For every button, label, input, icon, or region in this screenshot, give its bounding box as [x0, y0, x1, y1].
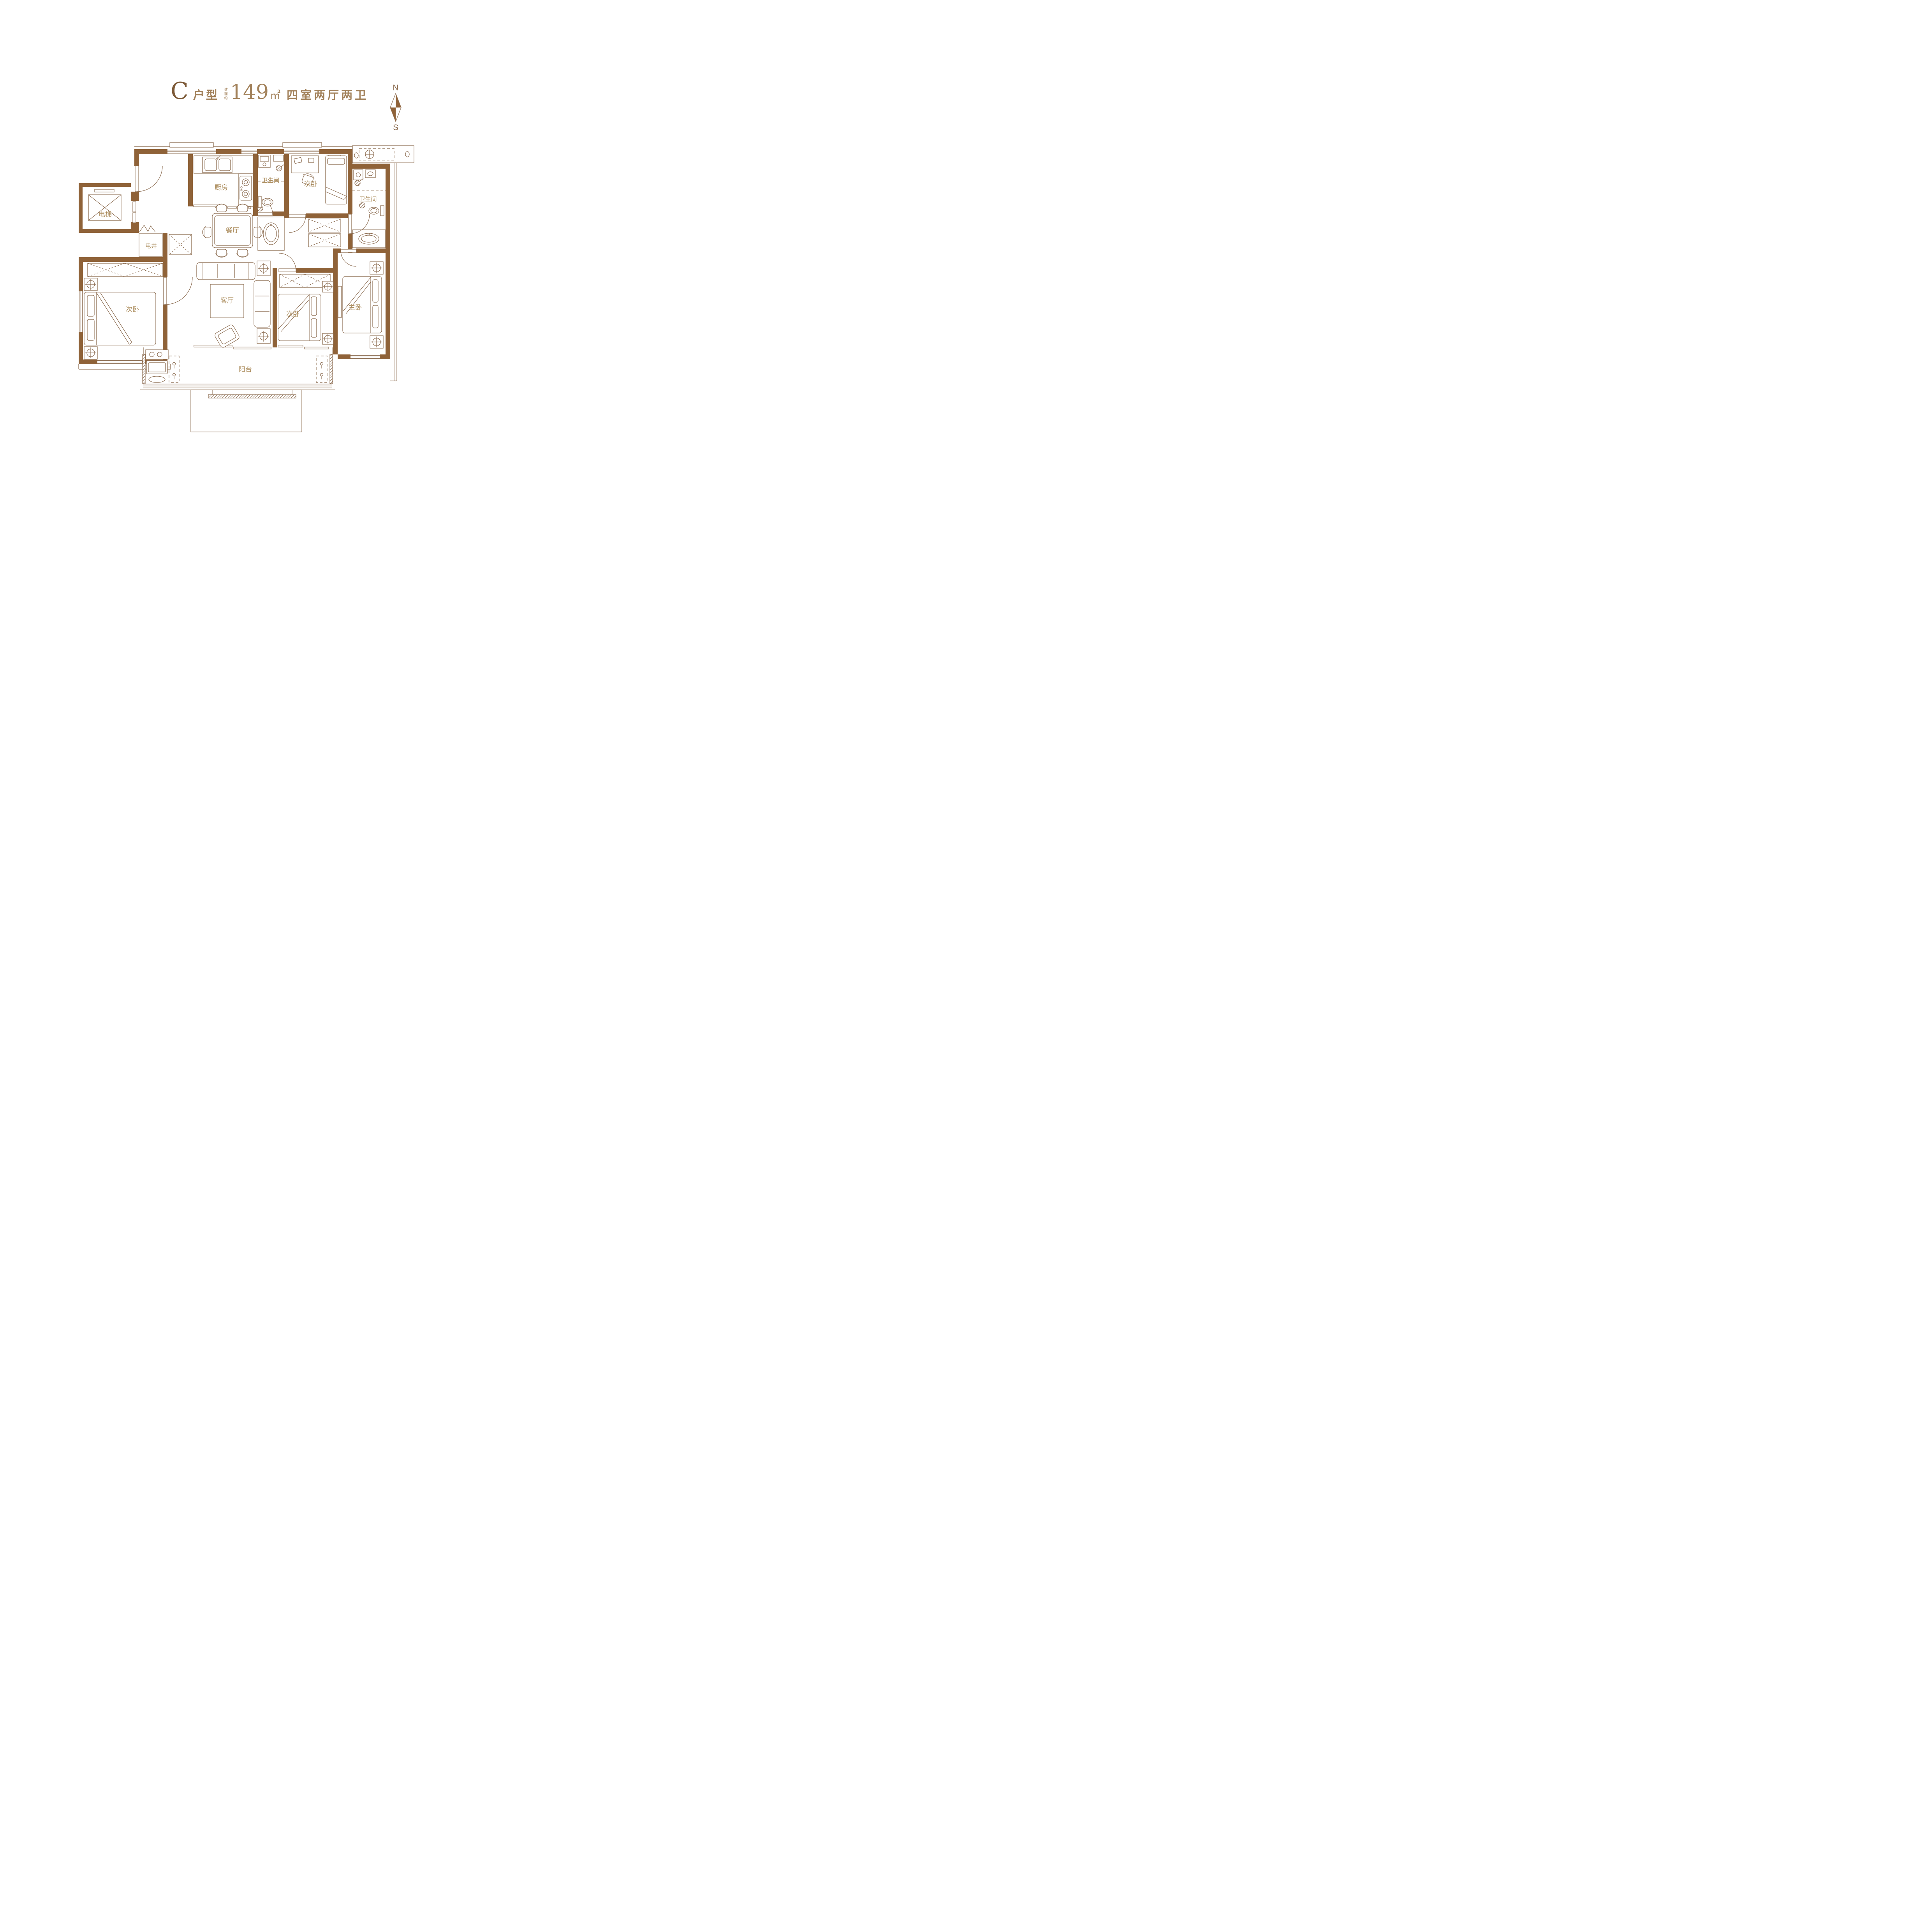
- bath-shelf: [273, 155, 284, 161]
- room-label-shaft: 电井: [145, 243, 157, 249]
- bedroom-middle-door: [279, 253, 296, 272]
- floorplan-page: C 户型 建面约 149 ㎡ 四室两厅两卫 N S: [0, 0, 483, 482]
- window-bay-top-right: [283, 143, 322, 147]
- window-master-south: [350, 356, 380, 359]
- window-bay-top-left: [170, 143, 213, 147]
- living-balcony-sliding-door: [194, 345, 271, 349]
- toilet-icon: [258, 197, 273, 208]
- room-elevator: 电梯: [88, 189, 121, 220]
- equipment-platform: [352, 146, 414, 163]
- area-prefix: 建面约: [224, 88, 227, 100]
- room-label-living: 客厅: [220, 297, 234, 304]
- washer-icon: [354, 170, 363, 180]
- room-label-bath-north: 卫生间: [262, 177, 279, 184]
- room-living: 客厅: [197, 261, 270, 349]
- plan-title: C 户型 建面约 149 ㎡ 四室两厅两卫: [171, 79, 368, 103]
- room-label-dining: 餐厅: [226, 227, 239, 234]
- hall-cabinet: [169, 234, 192, 255]
- washing-machine-icon: [259, 155, 270, 167]
- window-kitchen: [167, 150, 216, 153]
- room-label-kitchen: 厨房: [215, 184, 228, 191]
- armchair-icon: [214, 324, 240, 348]
- kitchen-sink-icon: [203, 155, 232, 173]
- side-table-lamp-icon: [257, 261, 270, 276]
- floor-drain-icon: [359, 203, 365, 208]
- shaft-symbol-icon: [139, 225, 155, 232]
- stove-icon: [240, 176, 252, 200]
- small-basin-icon: [365, 170, 375, 178]
- room-label-bedroom-west: 次卧: [126, 306, 139, 313]
- exterior-terrace: [191, 390, 302, 432]
- entry-door: [135, 166, 162, 192]
- room-bathroom-north: 卫生间: [257, 155, 284, 250]
- layout-description: 四室两厅两卫: [287, 86, 368, 102]
- room-bedroom-north: 次卧: [291, 155, 347, 247]
- window-bedroom-north: [284, 150, 319, 153]
- nightstand-icon: [84, 278, 97, 291]
- area-value: 149: [230, 82, 269, 102]
- elevator-indicator: [95, 189, 114, 192]
- area-unit: ㎡: [270, 87, 280, 102]
- room-balcony: 阳台: [140, 347, 335, 432]
- washer-space-right: [316, 356, 327, 382]
- room-bedroom-west: 次卧: [84, 263, 163, 359]
- bedroom-middle-balcony-sliding-door: [278, 345, 329, 349]
- sofa-icon: [197, 263, 255, 280]
- sofa-chaise-icon: [254, 280, 270, 327]
- room-label-bedroom-north: 次卧: [304, 180, 317, 188]
- room-label-master: 主卧: [349, 304, 362, 311]
- compass: N S: [390, 83, 401, 132]
- bedroom-north-door: [289, 214, 306, 233]
- unit-letter: C: [171, 79, 188, 103]
- room-master-bedroom: 主卧: [338, 262, 383, 348]
- nightstand-icon: [322, 333, 333, 344]
- nightstand-icon: [84, 347, 97, 359]
- compass-south-label: S: [393, 123, 398, 132]
- nightstand-icon: [322, 281, 333, 292]
- elevator-doors: [133, 202, 136, 223]
- window-bedroom-west: [79, 291, 83, 332]
- window-bath-north: [241, 150, 257, 153]
- room-kitchen: 厨房: [194, 155, 253, 206]
- toilet-icon: [369, 206, 384, 216]
- room-label-bedroom-middle: 次卧: [286, 310, 299, 318]
- unit-type-label: 户型: [193, 86, 219, 102]
- compass-north-label: N: [393, 83, 398, 92]
- room-bathroom-east: 卫生间: [352, 170, 386, 248]
- wardrobe-icon: [88, 263, 163, 277]
- side-table-lamp-icon: [257, 329, 270, 344]
- hall-wardrobe-icons: [308, 219, 341, 247]
- nightstand-icon: [370, 262, 383, 274]
- window-bedroom-west-south: [97, 361, 142, 364]
- room-label-elevator: 电梯: [99, 211, 112, 218]
- tv-cabinet: [338, 286, 342, 317]
- master-bedroom-door: [341, 249, 356, 266]
- bathroom-east-door: [349, 214, 370, 234]
- desk-icon: [291, 156, 319, 173]
- vanity-sink-icon: [258, 217, 284, 250]
- bed-icon: [278, 294, 321, 341]
- room-label-bath-east: 卫生间: [359, 196, 377, 203]
- room-bedroom-middle: 次卧: [278, 274, 333, 344]
- bed-icon: [84, 292, 156, 345]
- bedroom-west-door: [164, 277, 192, 305]
- room-label-balcony: 阳台: [239, 366, 252, 373]
- window-bay-east: [390, 146, 397, 381]
- floorplan-drawing: N S: [0, 0, 483, 482]
- laundry-cabinet-icon: [146, 350, 168, 382]
- shower-head-icon: [276, 164, 284, 171]
- single-bed-icon: [326, 156, 347, 204]
- nightstand-icon: [370, 336, 383, 348]
